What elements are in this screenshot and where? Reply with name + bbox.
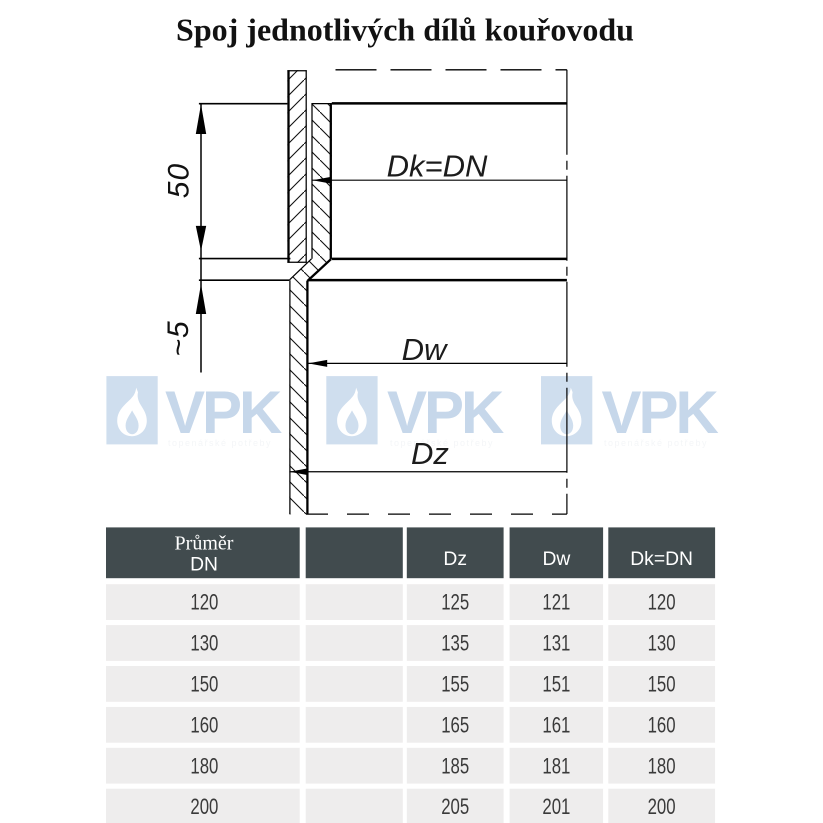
svg-text:DN: DN bbox=[190, 555, 218, 576]
svg-text:121: 121 bbox=[542, 590, 570, 615]
svg-text:Dk=DN: Dk=DN bbox=[387, 149, 488, 184]
svg-text:topenářské potřeby: topenářské potřeby bbox=[604, 438, 708, 448]
svg-text:Dz: Dz bbox=[443, 549, 467, 570]
svg-text:150: 150 bbox=[648, 672, 676, 697]
svg-text:205: 205 bbox=[441, 794, 469, 819]
svg-text:180: 180 bbox=[190, 753, 218, 778]
svg-text:VPK: VPK bbox=[165, 379, 282, 446]
svg-text:155: 155 bbox=[441, 672, 469, 697]
svg-text:125: 125 bbox=[441, 590, 469, 615]
svg-text:120: 120 bbox=[190, 590, 218, 615]
svg-text:201: 201 bbox=[542, 794, 570, 819]
svg-text:200: 200 bbox=[648, 794, 676, 819]
svg-text:VPK: VPK bbox=[602, 379, 719, 446]
svg-text:180: 180 bbox=[648, 753, 676, 778]
svg-text:120: 120 bbox=[648, 590, 676, 615]
svg-text:~5: ~5 bbox=[162, 320, 195, 356]
svg-text:200: 200 bbox=[190, 794, 218, 819]
svg-text:130: 130 bbox=[190, 631, 218, 656]
svg-text:Dw: Dw bbox=[402, 332, 449, 367]
svg-text:185: 185 bbox=[441, 753, 469, 778]
svg-text:50: 50 bbox=[163, 163, 196, 198]
svg-text:160: 160 bbox=[190, 712, 218, 737]
svg-text:150: 150 bbox=[190, 672, 218, 697]
svg-text:165: 165 bbox=[441, 712, 469, 737]
svg-text:Dw: Dw bbox=[542, 549, 570, 570]
svg-text:Dz: Dz bbox=[411, 436, 449, 471]
svg-text:130: 130 bbox=[648, 631, 676, 656]
svg-text:135: 135 bbox=[441, 631, 469, 656]
svg-text:161: 161 bbox=[542, 712, 570, 737]
svg-text:160: 160 bbox=[648, 712, 676, 737]
svg-text:Průměr: Průměr bbox=[175, 532, 234, 554]
svg-text:topenářské potřeby: topenářské potřeby bbox=[168, 438, 272, 448]
svg-text:181: 181 bbox=[542, 753, 570, 778]
svg-text:Spoj jednotlivých dílů kouřovo: Spoj jednotlivých dílů kouřovodu bbox=[176, 12, 634, 48]
svg-text:151: 151 bbox=[542, 672, 570, 697]
svg-text:131: 131 bbox=[542, 631, 570, 656]
svg-text:Dk=DN: Dk=DN bbox=[630, 549, 693, 570]
